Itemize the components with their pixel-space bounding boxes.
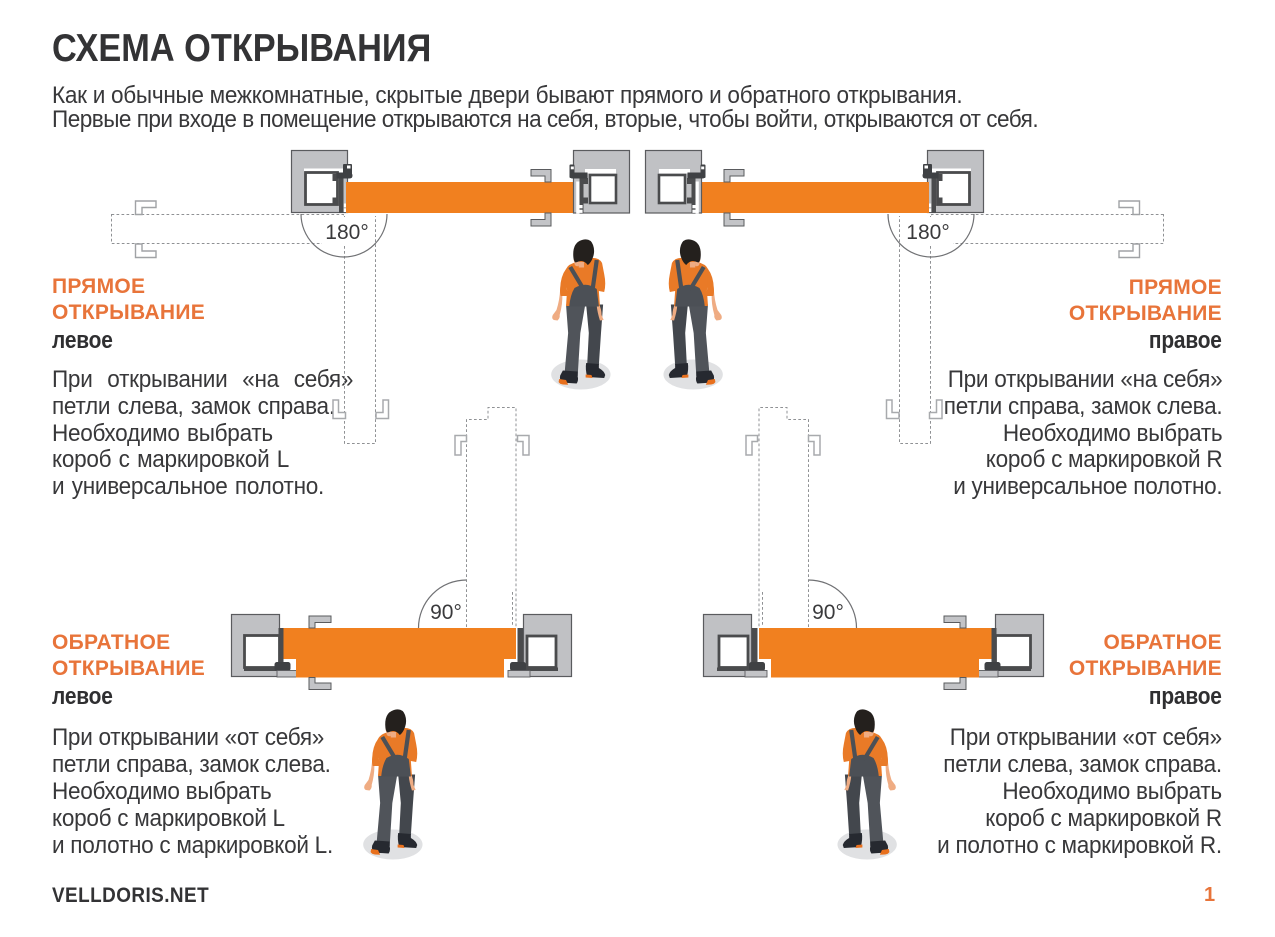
svg-text:180°: 180° bbox=[325, 221, 368, 244]
svg-text:90°: 90° bbox=[430, 601, 462, 624]
svg-text:180°: 180° bbox=[906, 221, 949, 244]
svg-text:90°: 90° bbox=[812, 601, 844, 624]
